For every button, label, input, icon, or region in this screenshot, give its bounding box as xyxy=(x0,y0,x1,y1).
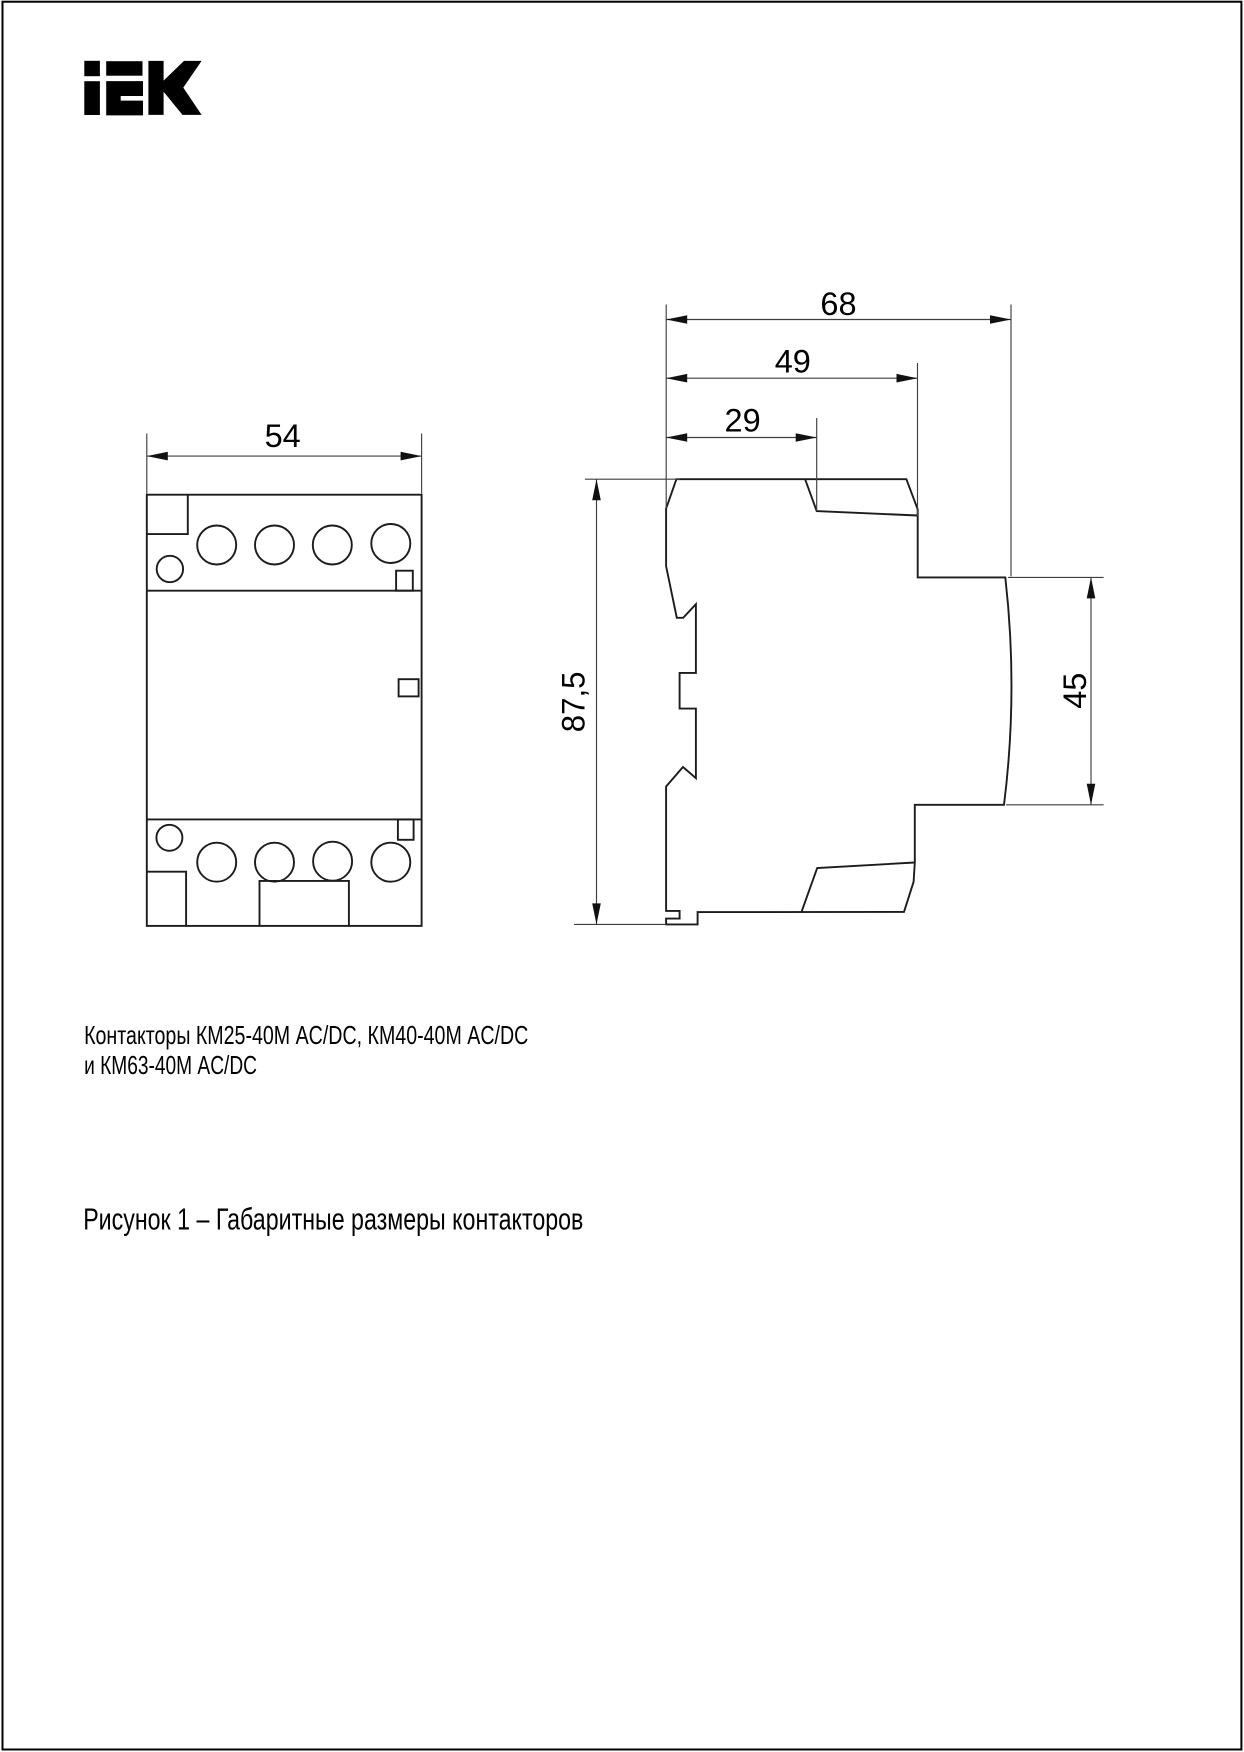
svg-text:68: 68 xyxy=(820,286,856,322)
svg-text:29: 29 xyxy=(725,403,761,439)
svg-text:и КМ63-40М AC/DC: и КМ63-40М AC/DC xyxy=(84,1050,257,1080)
svg-text:Рисунок 1 – Габаритные размеры: Рисунок 1 – Габаритные размеры контактор… xyxy=(83,1202,583,1237)
svg-text:Контакторы КМ25-40М AC/DC, КМ4: Контакторы КМ25-40М AC/DC, КМ40-40М AC/D… xyxy=(84,1020,528,1050)
svg-text:54: 54 xyxy=(265,418,301,454)
svg-text:87,5: 87,5 xyxy=(556,672,592,733)
svg-text:49: 49 xyxy=(775,344,811,380)
svg-text:45: 45 xyxy=(1057,673,1093,709)
